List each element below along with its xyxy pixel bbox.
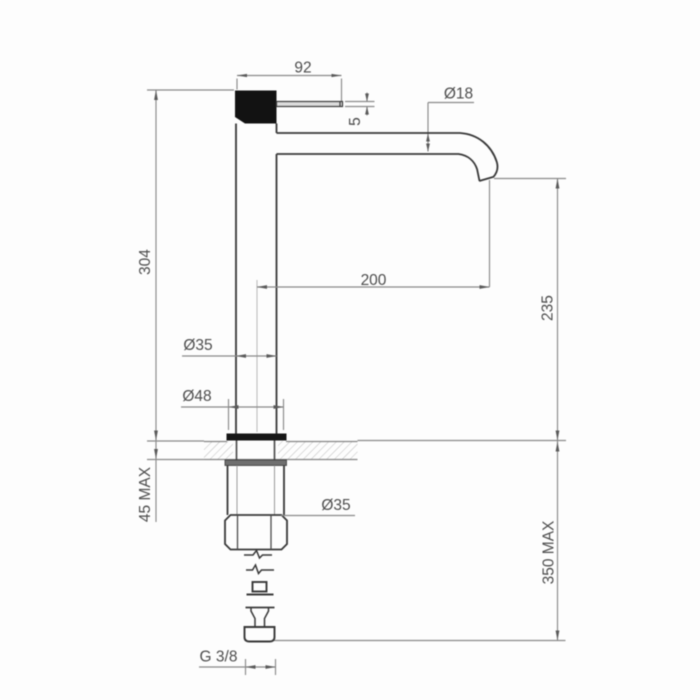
svg-text:Ø18: Ø18 bbox=[444, 86, 473, 103]
svg-text:G 3/8: G 3/8 bbox=[200, 649, 238, 666]
svg-text:200: 200 bbox=[361, 272, 387, 289]
svg-text:Ø48: Ø48 bbox=[182, 388, 211, 405]
svg-text:45 MAX: 45 MAX bbox=[137, 466, 154, 522]
svg-text:350 MAX: 350 MAX bbox=[541, 520, 558, 584]
svg-text:304: 304 bbox=[137, 249, 154, 275]
svg-text:92: 92 bbox=[294, 60, 311, 77]
svg-text:5: 5 bbox=[347, 117, 364, 126]
svg-text:Ø35: Ø35 bbox=[321, 497, 350, 514]
svg-text:235: 235 bbox=[540, 295, 557, 321]
svg-text:Ø35: Ø35 bbox=[183, 337, 212, 354]
